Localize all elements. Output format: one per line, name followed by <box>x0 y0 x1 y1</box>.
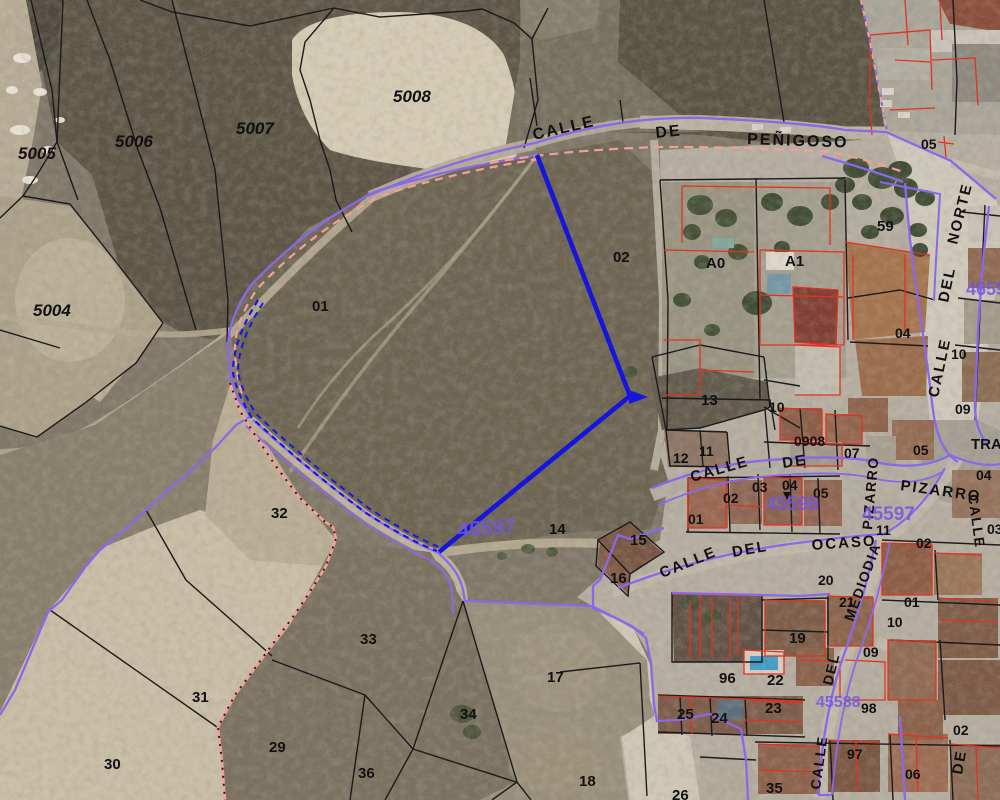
svg-text:32: 32 <box>271 505 288 522</box>
svg-text:97: 97 <box>847 746 863 762</box>
svg-text:35: 35 <box>766 780 783 797</box>
svg-text:45596: 45596 <box>766 494 819 515</box>
svg-text:02: 02 <box>916 535 932 551</box>
svg-text:TRA: TRA <box>971 436 1000 453</box>
svg-text:0908: 0908 <box>794 433 825 449</box>
svg-text:98: 98 <box>861 700 877 716</box>
svg-text:04: 04 <box>895 325 911 341</box>
svg-text:14: 14 <box>549 521 566 538</box>
svg-text:22: 22 <box>767 672 784 689</box>
svg-text:10: 10 <box>887 614 903 630</box>
svg-text:20: 20 <box>818 572 834 588</box>
svg-text:4659: 4659 <box>966 279 1000 299</box>
svg-text:34: 34 <box>460 706 477 723</box>
svg-text:59: 59 <box>877 218 894 235</box>
svg-text:24: 24 <box>711 710 728 727</box>
svg-text:DE: DE <box>655 122 683 142</box>
svg-text:11: 11 <box>699 443 714 459</box>
svg-text:26: 26 <box>672 787 689 800</box>
svg-text:09: 09 <box>863 644 879 660</box>
svg-text:05: 05 <box>921 136 937 152</box>
svg-text:23: 23 <box>765 700 782 717</box>
svg-text:19: 19 <box>789 630 806 647</box>
svg-text:5008: 5008 <box>393 87 431 106</box>
svg-text:45588: 45588 <box>816 694 861 711</box>
svg-text:01: 01 <box>312 298 329 315</box>
svg-text:04: 04 <box>976 467 992 483</box>
svg-text:10: 10 <box>769 399 785 415</box>
svg-text:18: 18 <box>579 773 596 790</box>
svg-text:5004: 5004 <box>33 301 71 320</box>
svg-text:06: 06 <box>905 766 921 782</box>
svg-text:45597: 45597 <box>457 515 517 542</box>
svg-text:5007: 5007 <box>236 119 275 138</box>
svg-text:36: 36 <box>358 765 375 782</box>
svg-text:31: 31 <box>192 689 209 706</box>
svg-text:12: 12 <box>673 450 689 466</box>
svg-text:33: 33 <box>360 631 377 648</box>
svg-text:01: 01 <box>688 511 704 527</box>
svg-text:03: 03 <box>987 521 1000 537</box>
svg-text:29: 29 <box>269 739 286 756</box>
svg-text:DE: DE <box>781 452 808 472</box>
svg-text:09: 09 <box>955 401 971 417</box>
svg-text:17: 17 <box>547 669 564 686</box>
svg-text:5005: 5005 <box>18 144 56 163</box>
svg-text:A0: A0 <box>706 255 725 272</box>
svg-text:04: 04 <box>782 477 798 493</box>
svg-text:A1: A1 <box>785 253 804 270</box>
svg-text:02: 02 <box>953 722 969 738</box>
svg-text:25: 25 <box>677 706 694 723</box>
svg-text:03: 03 <box>752 479 768 495</box>
svg-text:96: 96 <box>719 670 736 687</box>
svg-text:02: 02 <box>723 490 739 506</box>
svg-text:5006: 5006 <box>115 132 153 151</box>
svg-text:10: 10 <box>951 346 967 362</box>
svg-text:45597: 45597 <box>862 504 915 525</box>
svg-text:05: 05 <box>913 442 929 458</box>
svg-text:02: 02 <box>613 249 630 266</box>
svg-text:16: 16 <box>610 570 627 587</box>
svg-text:30: 30 <box>104 756 121 773</box>
svg-text:15: 15 <box>630 532 647 549</box>
svg-text:13: 13 <box>701 392 718 409</box>
svg-text:01: 01 <box>904 594 920 610</box>
svg-text:07: 07 <box>844 445 860 461</box>
